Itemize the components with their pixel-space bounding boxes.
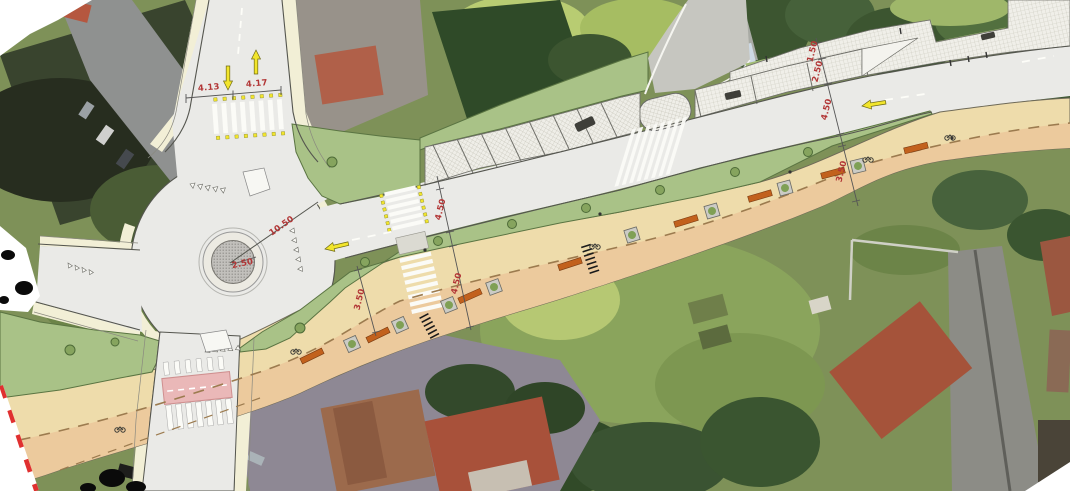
dim-north-lane-west: 4.13	[198, 82, 221, 94]
site-plan-canvas: 4.13 4.17 10.50 2.50 4.50 4.50 3.50 1.50…	[0, 0, 1070, 491]
dim-north-lane-east: 4.17	[246, 78, 269, 90]
